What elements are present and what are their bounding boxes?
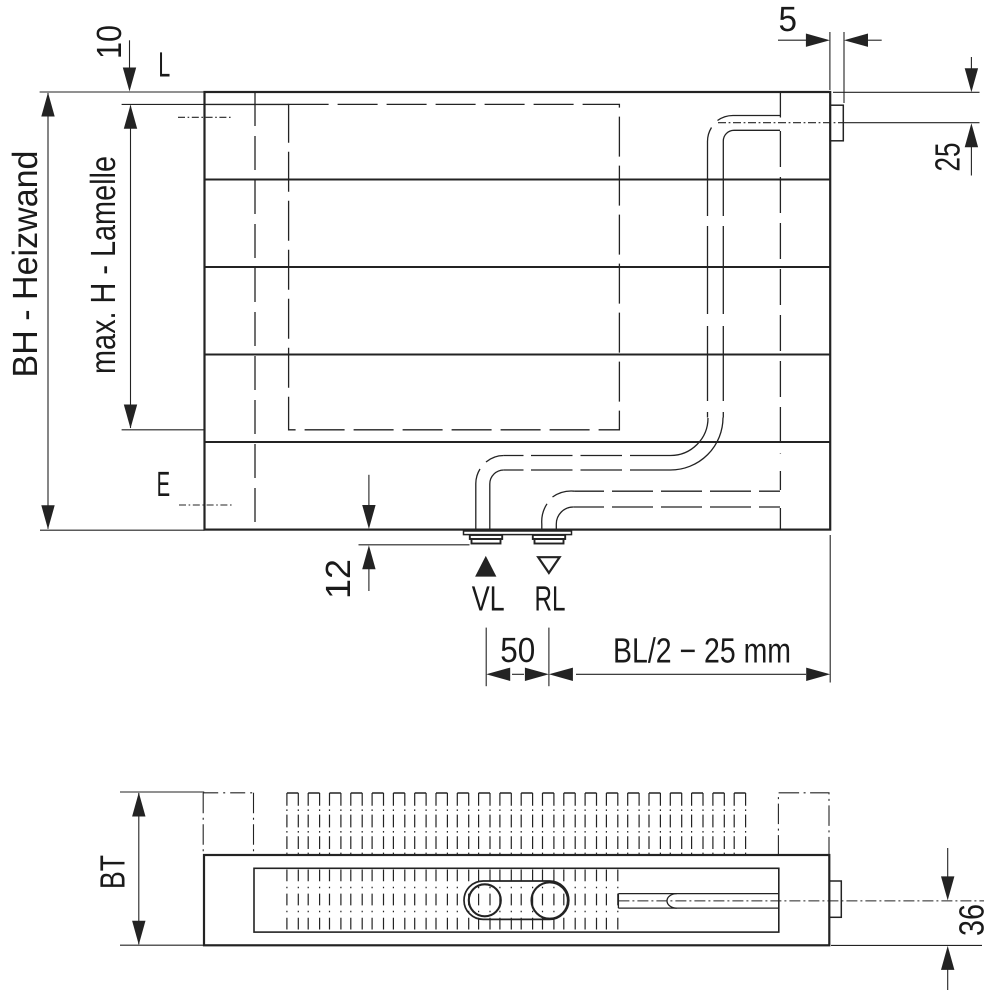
svg-text:L: L — [158, 46, 170, 85]
svg-text:BT: BT — [94, 855, 133, 889]
svg-text:5: 5 — [779, 0, 798, 39]
svg-text:E: E — [157, 465, 171, 504]
svg-text:VL: VL — [472, 580, 505, 619]
svg-text:12: 12 — [319, 559, 358, 599]
svg-text:25: 25 — [929, 143, 968, 172]
svg-text:36: 36 — [953, 904, 992, 936]
svg-text:RL: RL — [535, 580, 566, 619]
svg-text:BL/2 − 25 mm: BL/2 − 25 mm — [613, 632, 791, 671]
svg-text:max. H - Lamelle: max. H - Lamelle — [84, 156, 123, 374]
svg-text:BH - Heizwand: BH - Heizwand — [6, 151, 45, 378]
svg-text:10: 10 — [90, 25, 129, 59]
svg-text:50: 50 — [500, 631, 535, 670]
